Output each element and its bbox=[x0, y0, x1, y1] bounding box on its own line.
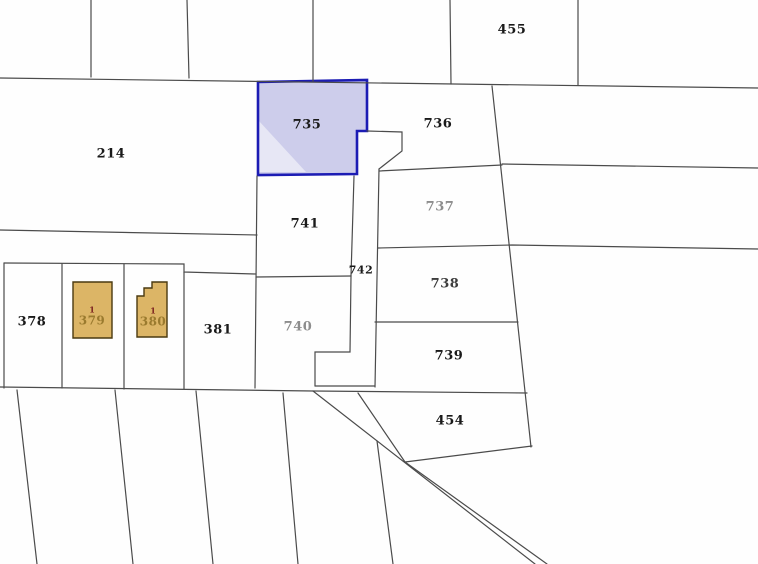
boundary-line bbox=[313, 391, 527, 393]
boundary-line bbox=[255, 176, 257, 388]
boundary-line bbox=[0, 230, 257, 235]
boundary-line bbox=[405, 446, 532, 462]
building-380 bbox=[137, 282, 167, 337]
boundary-line bbox=[405, 462, 547, 564]
cadastral-map: 4552147357367377417427387407393783814541… bbox=[0, 0, 758, 564]
boundary-line bbox=[315, 276, 351, 386]
boundary-line bbox=[196, 391, 213, 564]
boundary-line bbox=[0, 387, 313, 391]
boundary-line bbox=[379, 165, 502, 171]
boundary-line bbox=[17, 390, 37, 564]
boundary-line bbox=[115, 390, 133, 564]
boundary-line bbox=[283, 393, 298, 564]
boundary-line bbox=[256, 276, 351, 277]
boundary-line bbox=[313, 391, 535, 564]
parcel-boundary-lines bbox=[0, 0, 758, 564]
map-geometry-layer bbox=[0, 0, 758, 564]
boundary-line bbox=[378, 245, 758, 249]
boundary-line bbox=[351, 176, 354, 276]
buildings-layer bbox=[73, 282, 167, 338]
boundary-line bbox=[502, 164, 758, 168]
building-379 bbox=[73, 282, 112, 338]
boundary-line bbox=[4, 263, 256, 274]
boundary-line bbox=[450, 0, 451, 84]
boundary-line bbox=[187, 0, 189, 78]
selected-parcel-735 bbox=[258, 80, 367, 175]
boundary-line bbox=[358, 393, 405, 462]
boundary-line bbox=[0, 78, 758, 88]
boundary-line bbox=[375, 169, 379, 387]
boundary-line bbox=[377, 441, 393, 564]
boundary-line bbox=[367, 131, 402, 169]
